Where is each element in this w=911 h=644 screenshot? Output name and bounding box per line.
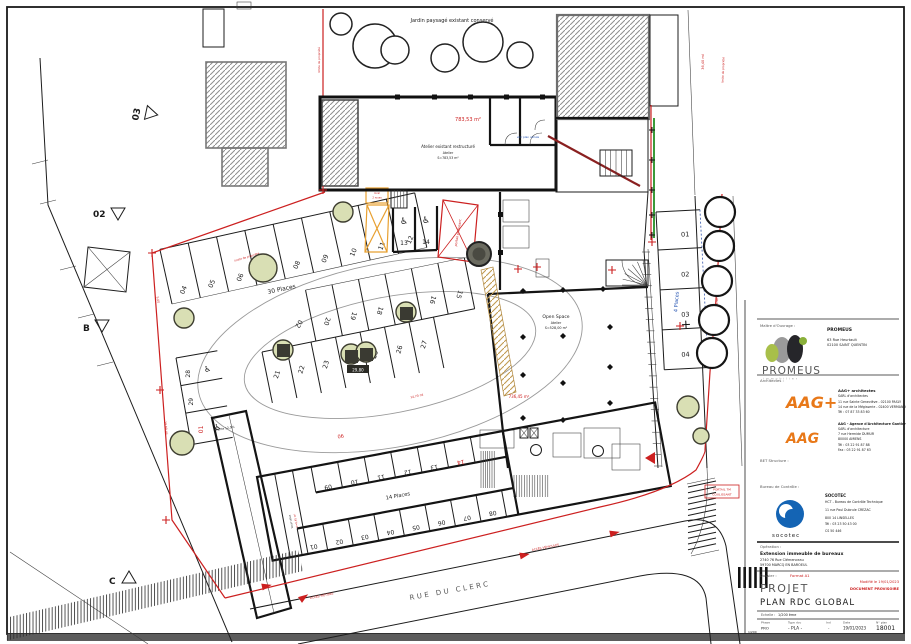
- column-icon: [468, 95, 473, 100]
- architect1-line: 14 rue de la Mégisserie - 02400 VERMAND: [838, 405, 906, 409]
- aag-plus-logo-icon: AAG+: [784, 393, 837, 412]
- scale-value: 1/200 ème: [778, 613, 796, 617]
- control-label: Bureau de Contrôle :: [760, 484, 799, 489]
- stall-number: 05: [411, 523, 420, 531]
- table-header: Phase: [761, 621, 770, 625]
- stall-number: 02: [681, 270, 690, 278]
- street-tree-icon: [704, 231, 734, 261]
- architect1-name: AAG+ architectes: [838, 388, 876, 393]
- planter-icon: [345, 350, 358, 363]
- control-line: 800 14 LINSELLES: [825, 516, 854, 520]
- stall-number: 14: [422, 239, 430, 246]
- client-address: 02100 SAINT QUENTIN: [827, 343, 867, 347]
- control-line: 11 rue Paul Dubrule CREZAC: [825, 508, 871, 512]
- gate-number-red: 06: [337, 434, 344, 441]
- operation-label: Opération :: [760, 544, 781, 549]
- planter-icon: [400, 307, 413, 320]
- stall-number: 01: [309, 542, 318, 550]
- atelier-label: Atelier existant restructuré: [421, 144, 475, 149]
- atelier-blue-note: voir plan cellule: [517, 135, 539, 139]
- table-header: Ind: [826, 621, 831, 625]
- existing-building-step: [222, 148, 268, 186]
- aag-logo-icon: AAG: [785, 431, 819, 447]
- table-header: Date: [843, 621, 850, 625]
- stall-number-red: 01: [198, 425, 205, 433]
- street-tree-icon: [702, 266, 732, 296]
- stall-number-red: 14: [456, 458, 465, 466]
- drawing-sheet: Jardin paysagé existant conservé limite …: [0, 0, 911, 644]
- column-icon: [540, 95, 545, 100]
- marker-B-label: B: [83, 324, 90, 334]
- street-tree-icon: [699, 305, 729, 335]
- gate-box-label: PORTAIL 7M: [713, 488, 731, 492]
- architect2-name: AAG - Agence d'Architecture Gantier: [838, 422, 906, 426]
- atelier-hatched-band: [322, 100, 358, 186]
- control-line: HCT - Bureau de Contrôle Technique: [825, 500, 883, 504]
- architects-label: Architectes :: [760, 378, 784, 383]
- client-name: PROMEUS: [827, 327, 852, 333]
- sheet-border: [7, 7, 904, 634]
- rack-icon: [738, 567, 741, 588]
- scale-label: Echelle :: [761, 613, 775, 617]
- socotec-logo-text: socotec: [772, 533, 800, 539]
- column-icon: [498, 212, 503, 217]
- operation-address: 59700 MARCQ EN BAROEUL: [760, 563, 807, 567]
- stall-number: 13: [430, 463, 439, 471]
- street-tree-icon: [705, 197, 735, 227]
- corner-scale: 1/200: [748, 630, 757, 634]
- planter-icon: [360, 348, 373, 361]
- marker-02-label: 02: [93, 210, 106, 220]
- open-space-label: Open Space: [542, 314, 569, 320]
- tree-icon: [249, 254, 277, 282]
- architect1-line: 11 rue Sainte Geneviève - 02100 PASLY: [838, 400, 901, 404]
- control-line: CS 50 446: [825, 529, 841, 533]
- marker-C-label: C: [109, 577, 116, 587]
- stall-number: 01: [681, 230, 690, 238]
- planter-dim-label: 29,80: [352, 367, 364, 372]
- architect1-line: Tél : 07 87 33 83 60: [837, 410, 870, 414]
- garden-tree-icon: [431, 44, 459, 72]
- stall-number: 06: [437, 518, 446, 526]
- tree-icon: [333, 202, 353, 222]
- dimension-red: 36,40 ml: [701, 54, 705, 70]
- dossier-label: Dossier :: [760, 573, 777, 578]
- stall-number: 11: [376, 473, 385, 481]
- table-header: N° plan: [876, 621, 887, 625]
- garden-tree-icon: [330, 13, 352, 35]
- architect2-line: SARL d'architecture: [838, 427, 869, 431]
- dossier-format: Format A1: [790, 573, 810, 578]
- stall-number: 13: [400, 240, 408, 247]
- stall-number: 02: [335, 537, 344, 545]
- local-box-label: local: [374, 191, 380, 195]
- open-space-area-red: 736,45 m²: [509, 394, 530, 399]
- column-icon: [432, 95, 437, 100]
- atelier-area-red: 783,53 m²: [455, 117, 481, 123]
- bet-label: BET Structure :: [760, 458, 789, 463]
- open-space-label: S=528,00 m²: [545, 326, 568, 330]
- table-value: - PLA -: [788, 626, 803, 632]
- tree-icon: [693, 428, 709, 444]
- rack-icon: [754, 567, 757, 588]
- control-line: Tél : 03 23 50 43 00: [824, 522, 857, 526]
- stall-number: 03: [360, 533, 369, 541]
- atelier-label: S=783,53 m²: [437, 156, 459, 160]
- stall-number: 04: [386, 528, 395, 536]
- atelier-label: Atelier: [443, 151, 454, 155]
- wheelchair-icon: ♿: [422, 216, 430, 226]
- client-label: Maître d'Ouvrage :: [760, 323, 795, 328]
- garden-tree-icon: [507, 42, 533, 68]
- dark-tree-core: [473, 248, 486, 261]
- tree-icon: [170, 431, 194, 455]
- garden-tree-icon: [463, 22, 503, 62]
- operation-name: Extension immeuble de bureaux: [760, 551, 843, 557]
- phase-title: PROJET: [760, 582, 809, 595]
- client-address: 63 Rue Heurtault: [827, 338, 857, 342]
- wheelchair-icon: ♿: [203, 364, 212, 374]
- stall-number: 12: [403, 468, 412, 476]
- stall-number: 10: [350, 477, 359, 485]
- stall-number: 08: [488, 509, 497, 517]
- red-note: DOCUMENT PROVISOIRE: [850, 587, 900, 591]
- stall-number: 07: [462, 513, 471, 521]
- open-space-label: Atelier: [551, 321, 562, 325]
- column-icon: [504, 95, 509, 100]
- stall-number: 29: [188, 398, 195, 406]
- table-header: Type doc: [787, 621, 802, 625]
- stall-number: 09: [323, 482, 332, 490]
- column-icon: [498, 250, 503, 255]
- tree-icon: [677, 396, 699, 418]
- column-icon: [395, 95, 400, 100]
- table-value: PRO: [761, 626, 769, 631]
- architect2-line: 7 rue Hermide DUMUR: [838, 432, 875, 436]
- stall-number: 04: [681, 350, 690, 358]
- local-box-label: 2 roues: [372, 196, 382, 200]
- garden-tree-icon: [381, 36, 409, 64]
- plan-number: 18001: [876, 625, 895, 632]
- bo undary-note-top: limite de propriété: [317, 47, 321, 73]
- street-tree-icon: [697, 338, 727, 368]
- operation-address: 2740 76 Rue Clémenceau: [760, 558, 804, 562]
- architect2-line: Tél : 03 22 91 87 88: [837, 443, 870, 447]
- architect1-line: SARL d'architectes: [838, 394, 868, 398]
- existing-building-hatched: [206, 62, 286, 148]
- rack-icon: [749, 567, 752, 588]
- table-value: 19/01/2023: [843, 626, 867, 631]
- red-note: Modifié le 19/01/2023: [860, 580, 899, 584]
- architect2-line: 80000 AMIENS: [838, 437, 861, 441]
- drawing-title: PLAN RDC GLOBAL: [760, 598, 855, 608]
- gate-box-label: COULISSANT: [712, 493, 731, 497]
- tree-icon: [174, 308, 194, 328]
- stall-number: 28: [185, 370, 192, 378]
- control-name: SOCOTEC: [825, 493, 846, 498]
- stall-number: 03: [681, 310, 690, 318]
- planter-icon: [277, 344, 290, 357]
- architect2-line: Fax : 03 22 91 87 63: [838, 448, 871, 452]
- existing-building-large: [557, 15, 649, 119]
- wheelchair-icon: ♿: [400, 217, 408, 227]
- site-plan-svg: Jardin paysagé existant conservé limite …: [0, 0, 911, 644]
